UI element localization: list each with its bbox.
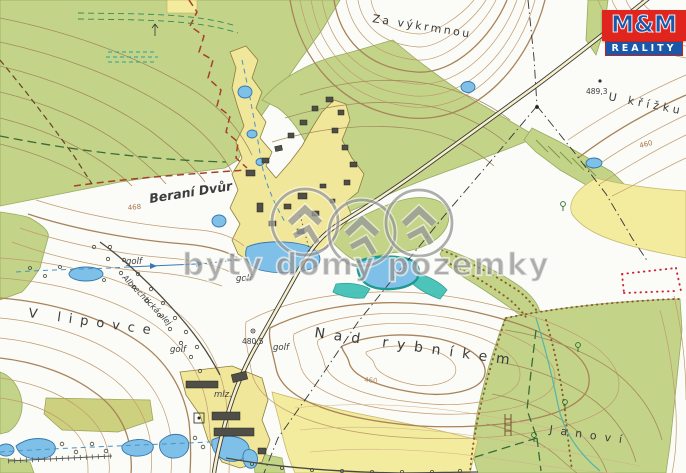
- label-contour-460-center: 460: [364, 376, 378, 385]
- label-elevation-489: 489,3: [586, 87, 608, 96]
- pond-chain-3: [160, 434, 189, 458]
- logo-mm-text: M&M: [611, 14, 677, 37]
- label-golf-3: golf: [170, 345, 188, 355]
- logo-reality-text: REALITY: [611, 44, 676, 54]
- pond-village-small: [212, 215, 226, 227]
- label-contour-468: 468: [127, 203, 141, 212]
- logo-red-box: M&M: [602, 10, 686, 41]
- mm-reality-logo: M&M REALITY: [602, 10, 686, 56]
- pond-chain-5: [243, 450, 257, 469]
- label-golf-4: golf: [273, 343, 291, 353]
- label-mlz: mlz.: [214, 390, 232, 400]
- watermark-text: byty domy pozemky: [182, 247, 550, 283]
- label-elevation-480: 480,5: [242, 337, 264, 346]
- label-golf-1: golf: [126, 257, 144, 267]
- map-screenshot: Za výkrmnou U křížku Beraní Dvůr Nad ryb…: [0, 0, 686, 473]
- pond-chain-2: [122, 439, 153, 456]
- pond-scrub-strip: [586, 158, 602, 168]
- pond-valley-1: [238, 86, 252, 98]
- pond-valley-2: [247, 130, 257, 138]
- logo-blue-bar: REALITY: [605, 41, 683, 56]
- spot-height-marker-north: [598, 79, 601, 82]
- boundary-node: [535, 105, 539, 109]
- field-notch-top: [167, 0, 197, 13]
- pond-chain-0: [0, 444, 14, 456]
- topographic-map: Za výkrmnou U křížku Beraní Dvůr Nad ryb…: [0, 0, 686, 473]
- pond-north: [461, 82, 475, 93]
